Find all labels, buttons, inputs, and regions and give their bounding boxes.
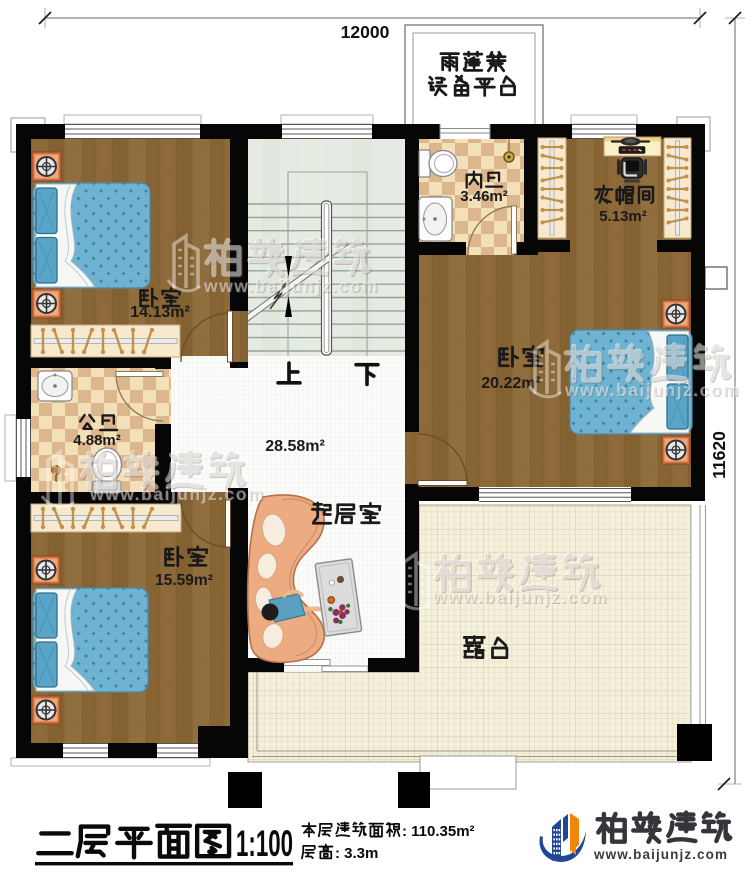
svg-text:www.baijunjz.com: www.baijunjz.com <box>564 380 740 400</box>
svg-text:11620: 11620 <box>709 431 729 479</box>
svg-text:12000: 12000 <box>341 22 390 42</box>
svg-text:www.baijunjz.com: www.baijunjz.com <box>432 587 608 607</box>
svg-text:14.13m²: 14.13m² <box>130 304 190 321</box>
svg-text:www.baijunjz.com: www.baijunjz.com <box>593 847 728 862</box>
svg-text:15.59m²: 15.59m² <box>155 572 213 589</box>
svg-text:3.46m²: 3.46m² <box>460 188 508 205</box>
svg-text:: 3.3m: : 3.3m <box>335 845 378 862</box>
svg-text:4.88m²: 4.88m² <box>73 432 121 449</box>
svg-text:www.baijunjz.com: www.baijunjz.com <box>89 484 265 504</box>
svg-text:5.13m²: 5.13m² <box>599 208 647 225</box>
svg-text:1:100: 1:100 <box>236 823 293 864</box>
svg-text:www.baijunjz.com: www.baijunjz.com <box>203 276 379 296</box>
svg-text:: 110.35m²: : 110.35m² <box>402 823 475 840</box>
svg-text:28.58m²: 28.58m² <box>265 438 325 455</box>
